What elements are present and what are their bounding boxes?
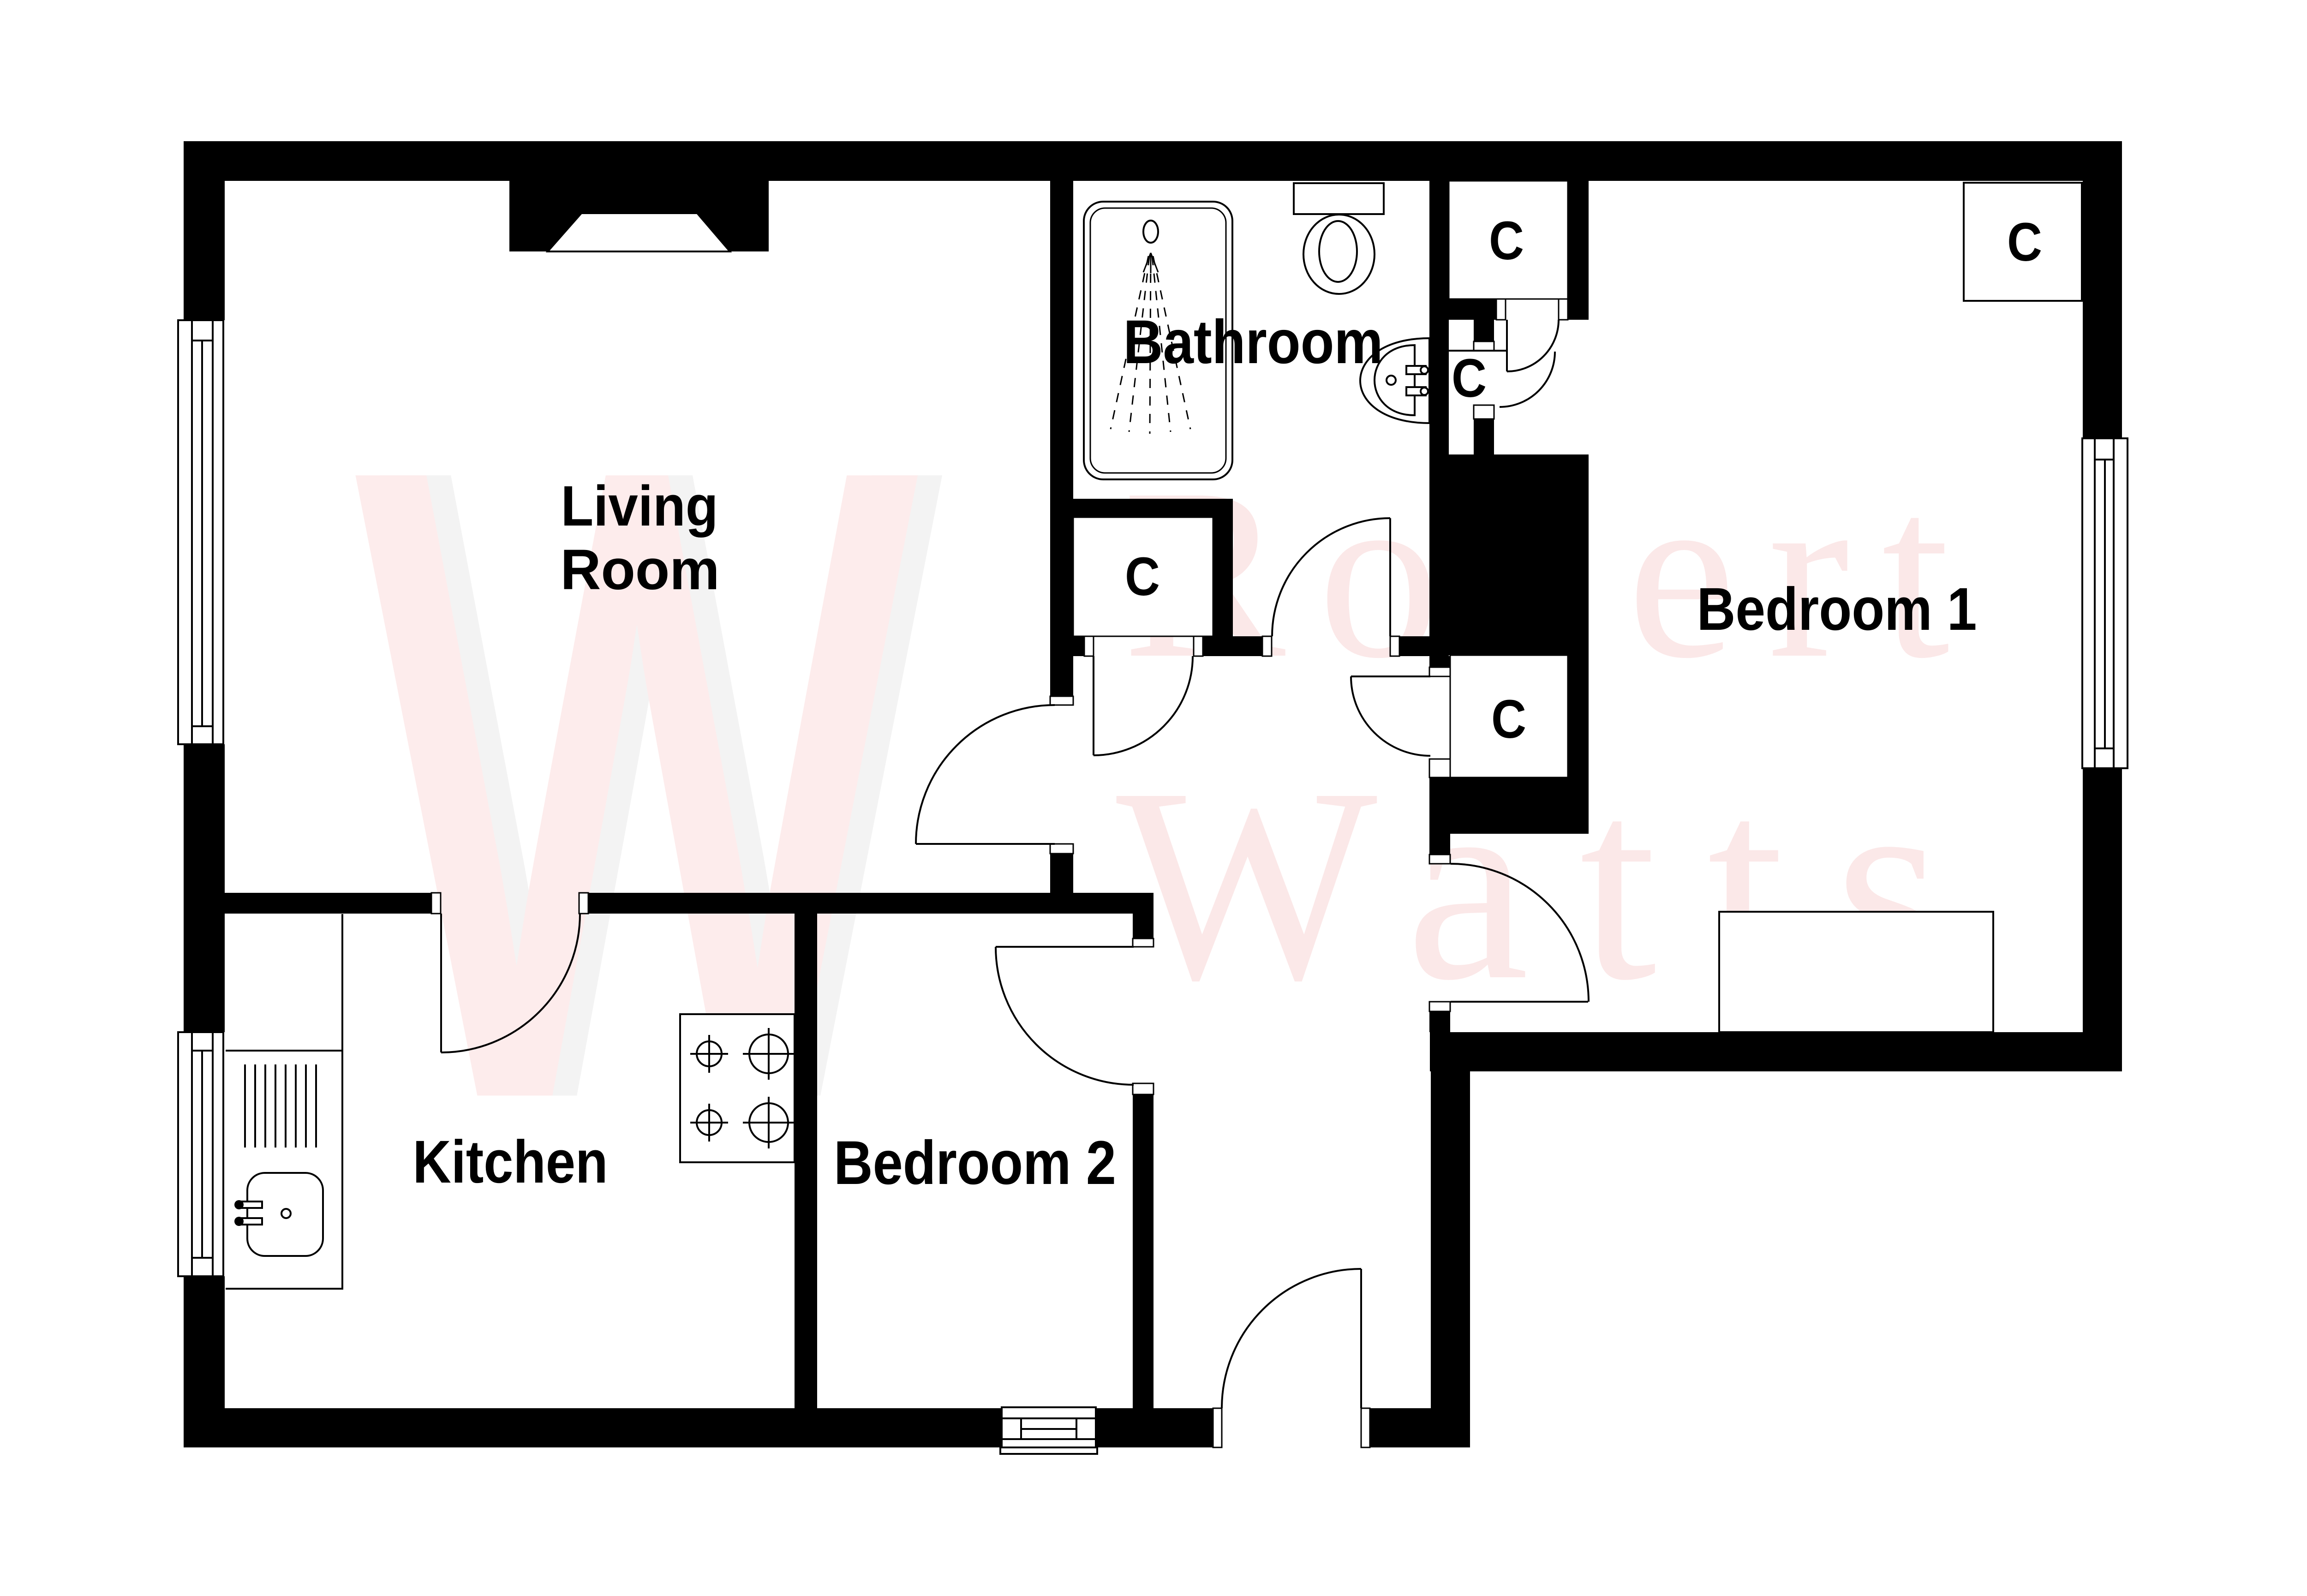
svg-text:Bathroom: Bathroom [1124,308,1383,377]
svg-text:Bedroom 2: Bedroom 2 [834,1129,1116,1197]
svg-text:C: C [1489,210,1524,271]
svg-text:Kitchen: Kitchen [413,1128,608,1196]
svg-text:Living: Living [561,475,718,538]
svg-text:W: W [362,297,916,1270]
svg-text:C: C [1125,546,1160,607]
svg-text:Room: Room [561,538,720,602]
svg-text:C: C [1491,689,1526,750]
svg-text:C: C [1452,348,1487,409]
svg-text:C: C [2007,212,2042,273]
svg-text:Bedroom 1: Bedroom 1 [1697,575,1977,643]
